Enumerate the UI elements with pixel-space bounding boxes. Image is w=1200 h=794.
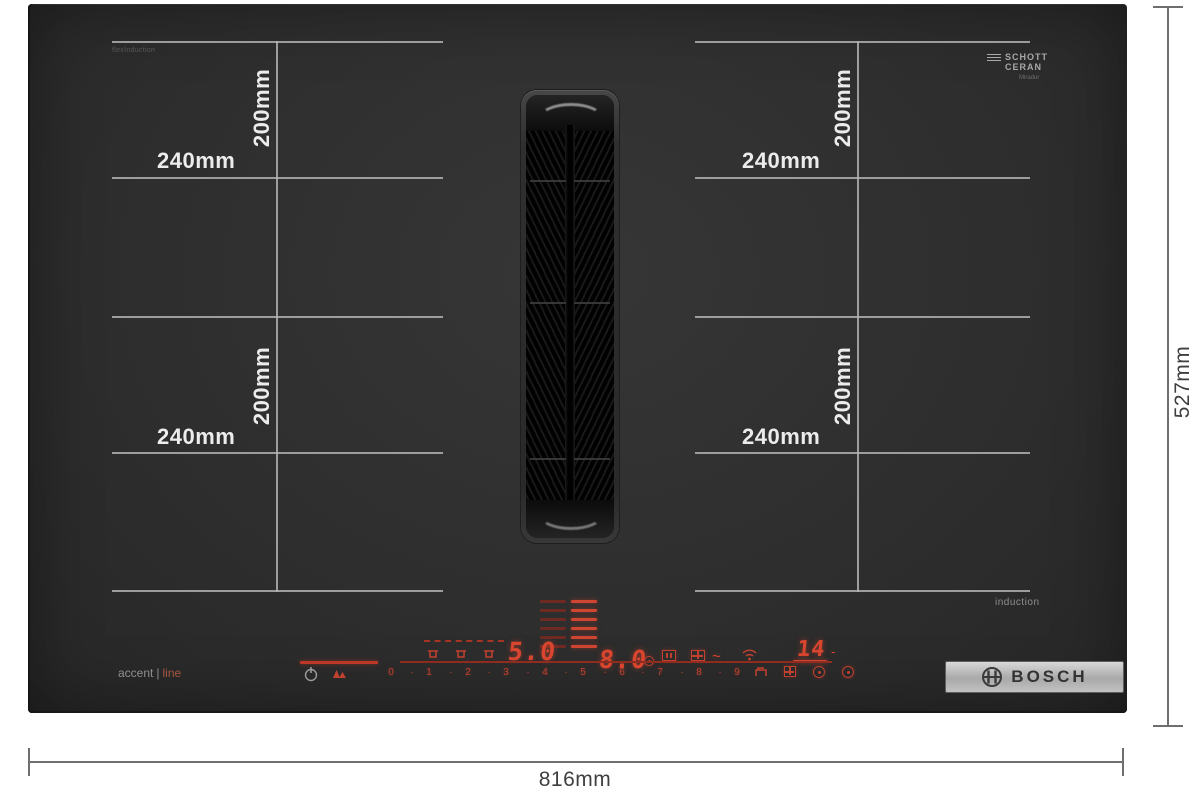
- series-left: accent: [118, 666, 153, 680]
- slider-number[interactable]: 9: [732, 667, 742, 678]
- zone-width-label: 240mm: [742, 424, 820, 450]
- downdraft-vent-module: [521, 90, 619, 543]
- slider-number[interactable]: 8: [694, 667, 704, 678]
- bosch-logo-plate: BOSCH: [945, 661, 1124, 693]
- slider-dot: ·: [407, 667, 417, 678]
- grid-icon[interactable]: [691, 650, 705, 661]
- slider-number[interactable]: 5: [578, 667, 588, 678]
- vent-fins-left: [526, 131, 567, 506]
- zone-line: [857, 41, 859, 592]
- slider-number[interactable]: 1: [424, 667, 434, 678]
- vent-center-spine: [565, 125, 575, 512]
- schott-line2: CERAN: [1005, 62, 1048, 72]
- zone-height-label: 200mm: [832, 341, 854, 431]
- series-divider: |: [156, 666, 159, 680]
- slider-track-segment[interactable]: [300, 661, 378, 664]
- slider-number[interactable]: 0: [386, 667, 396, 678]
- slider-dot: ·: [715, 667, 725, 678]
- vent-separator: [574, 180, 610, 182]
- slider-dot: ·: [600, 667, 610, 678]
- slider-number[interactable]: 7: [655, 667, 665, 678]
- dashed-indicator-line: [424, 640, 504, 642]
- induction-marking: induction: [995, 597, 1040, 608]
- zone-line: [695, 316, 1030, 318]
- bosch-anchor-icon: [981, 666, 1003, 688]
- height-dimension-tick: [1153, 6, 1183, 8]
- width-dimension-tick: [1122, 748, 1124, 776]
- zone-line: [695, 177, 1030, 179]
- slider-number[interactable]: 4: [540, 667, 550, 678]
- slider-dot: ·: [446, 667, 456, 678]
- overall-height-label: 527mm: [1172, 337, 1194, 427]
- vent-separator: [530, 180, 566, 182]
- height-dimension-line: [1167, 6, 1169, 726]
- timer-icon[interactable]: [813, 666, 825, 678]
- slider-number[interactable]: 6: [617, 667, 627, 678]
- slider-dot: ·: [523, 667, 533, 678]
- product-dimension-diagram: 240mm 240mm 240mm 240mm 200mm 200mm 200m…: [0, 0, 1200, 794]
- fan-level-bars-bright: [571, 600, 597, 648]
- timer-icon[interactable]: [842, 666, 854, 678]
- zone-line: [276, 41, 278, 592]
- bridge-zone-icon[interactable]: [754, 666, 768, 678]
- slider-number[interactable]: 2: [463, 667, 473, 678]
- zone-height-label: 200mm: [832, 63, 854, 153]
- zone-width-label: 240mm: [157, 424, 235, 450]
- vent-grille: [526, 95, 614, 538]
- slider-track[interactable]: [400, 661, 832, 663]
- vent-separator: [530, 302, 566, 304]
- vent-separator: [574, 302, 610, 304]
- pan-icons[interactable]: [427, 647, 497, 659]
- timer-display: 14: [796, 637, 827, 662]
- series-right: line: [162, 666, 181, 680]
- power-icon[interactable]: [303, 666, 319, 682]
- schott-subline: Miradur: [1019, 75, 1048, 81]
- zone-width-label: 240mm: [157, 148, 235, 174]
- slider-dot: ·: [561, 667, 571, 678]
- grid-icon[interactable]: [784, 666, 796, 677]
- slider-dot: ·: [677, 667, 687, 678]
- width-dimension-tick: [28, 748, 30, 776]
- frame-icon[interactable]: [662, 650, 676, 661]
- height-dimension-tick: [1153, 725, 1183, 727]
- bosch-wordmark: BOSCH: [1011, 667, 1087, 687]
- width-dimension-line: [28, 761, 1124, 763]
- schott-line1: SCHOTT: [1005, 52, 1048, 62]
- zone-line: [695, 452, 1030, 454]
- wifi-icon[interactable]: [741, 647, 758, 661]
- accentline-badge: accent | line: [118, 666, 181, 680]
- zone-height-label: 200mm: [251, 63, 273, 153]
- zone-line: [695, 590, 1030, 592]
- slider-dot: ·: [484, 667, 494, 678]
- corner-marking: flexInduction: [112, 47, 155, 54]
- vent-fins-right: [573, 131, 614, 506]
- timer-dash: -: [831, 644, 835, 659]
- zone-height-label: 200mm: [251, 341, 273, 431]
- schott-stripes-icon: [987, 54, 1001, 63]
- zone-line: [695, 41, 1030, 43]
- vent-separator: [574, 458, 610, 460]
- vent-bottom-highlight: [539, 500, 603, 530]
- slider-number[interactable]: 3: [501, 667, 511, 678]
- overall-width-label: 816mm: [475, 768, 675, 792]
- vent-separator: [530, 458, 566, 460]
- schott-ceran-logo: SCHOTT CERAN Miradur: [987, 52, 1048, 81]
- zone-width-label: 240mm: [742, 148, 820, 174]
- double-triangle-icon[interactable]: [332, 668, 348, 679]
- slider-dot: ·: [638, 667, 648, 678]
